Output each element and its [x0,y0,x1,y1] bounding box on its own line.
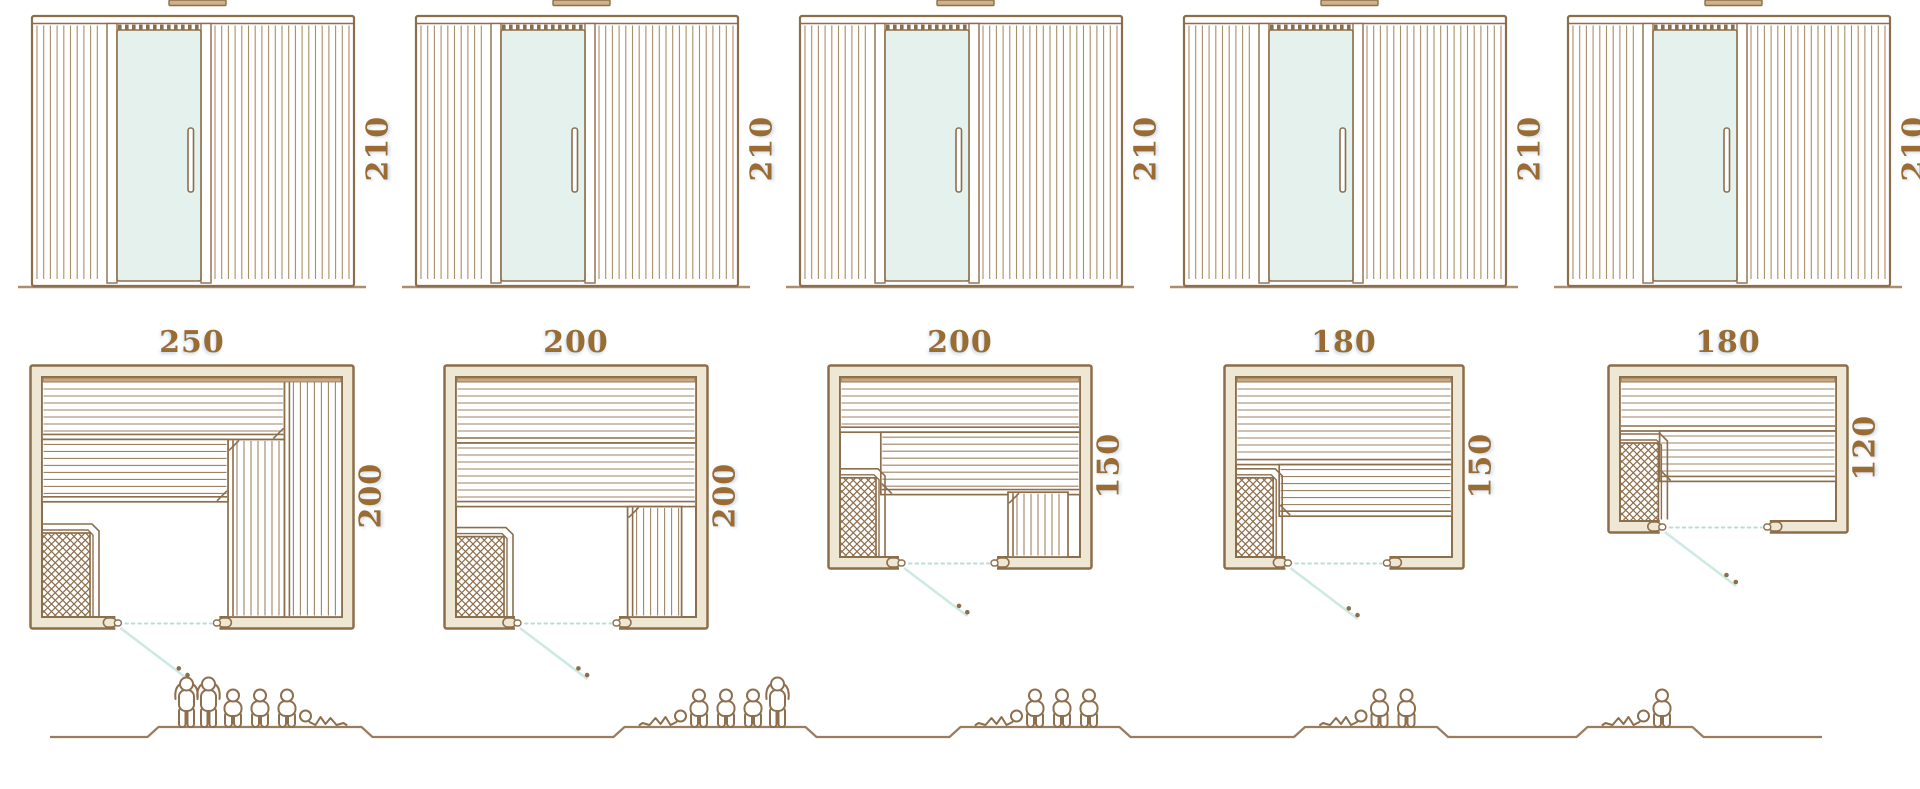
door-swing [1273,556,1401,620]
plan-depth-label-2: 200 [708,465,743,529]
sauna-plan-1: 250 200 [29,328,355,704]
bench [628,507,682,617]
bench [284,377,342,617]
plan-drawing-4 [1223,364,1465,644]
person-seated [718,690,735,728]
person-seated [1081,690,1098,728]
bench [42,439,228,501]
plan-drawing-5 [1607,364,1849,608]
plan-cell-5: 180 120 [1536,328,1920,678]
door-handle [1340,128,1346,192]
door-handle [188,128,194,192]
person-lying [976,711,1023,726]
person-lying [300,711,347,726]
person-seated [691,690,708,728]
person-seated [1371,690,1388,728]
person-seated [1054,690,1071,728]
bench [840,377,1080,432]
plan-width-label-5: 180 [1607,328,1849,364]
elevation-drawing [16,0,368,292]
sauna-plan-2: 200 200 [443,328,709,704]
person-standing [197,678,219,728]
elevation-cell-2: 210 [384,0,768,300]
plan-drawing [827,364,1093,644]
plan-cell-1: 250 200 [0,328,384,678]
elevation-drawing [1168,0,1520,292]
plan-drawing [443,364,709,704]
door-swing [1648,520,1782,587]
plan-drawing-2 [443,364,709,704]
ground-line [50,727,1822,737]
person-standing [766,678,788,728]
elevation-cell-1: 210 [0,0,384,300]
person-seated [745,690,762,728]
plan-drawing [1223,364,1465,644]
sauna-plan-4: 180 150 [1223,328,1465,644]
plan-width-label-1: 250 [29,328,355,364]
bench [1236,377,1452,465]
elevation-drawing [1552,0,1904,292]
elevation-drawing [784,0,1136,292]
sauna-dimensions-diagram: 210 210 210 210 210 250 200 200 200 [0,0,1920,789]
bench [228,439,284,617]
plan-width-label-3: 200 [827,328,1093,364]
person-lying [640,711,687,726]
person-seated [1654,690,1671,728]
person-lying [1320,711,1367,726]
bench [456,377,696,443]
elevation-cell-5: 210 [1536,0,1920,300]
bench [456,443,696,507]
plan-cell-4: 180 150 [1152,328,1536,678]
plan-cell-2: 200 200 [384,328,768,678]
person-seated [1398,690,1415,728]
sauna-elevation-5 [1552,0,1904,292]
person-seated [279,690,296,728]
plan-depth-label-5: 120 [1848,417,1883,481]
capacity-drawing [0,664,1920,789]
elevation-cell-3: 210 [768,0,1152,300]
person-seated [225,690,242,728]
door-handle [572,128,578,192]
person-seated [252,690,269,728]
elevation-cell-4: 210 [1152,0,1536,300]
sauna-elevation-1 [16,0,368,292]
sauna-plan-5: 180 120 [1607,328,1849,608]
plan-cell-3: 200 150 [768,328,1152,678]
plan-width-label-2: 200 [443,328,709,364]
door-handle [956,128,962,192]
elevation-drawing [400,0,752,292]
plan-depth-label-4: 150 [1464,435,1499,499]
bench [1279,465,1452,517]
bench [881,432,1080,494]
plan-drawing-3 [827,364,1093,644]
bench [1660,431,1836,481]
sauna-elevation-3 [784,0,1136,292]
heater [42,524,99,617]
sauna-elevation-4 [1168,0,1520,292]
person-standing [175,678,197,728]
door-handle [1724,128,1730,192]
sauna-plan-3: 200 150 [827,328,1093,644]
plan-drawing [1607,364,1849,608]
bench [1620,377,1836,431]
person-seated [1027,690,1044,728]
plan-width-label-4: 180 [1223,328,1465,364]
heater [456,528,513,617]
plan-depth-label-3: 150 [1092,435,1127,499]
person-lying [1603,711,1650,726]
elevation-height-label-5: 210 [1897,118,1920,182]
door-swing [887,556,1009,617]
capacity-row [0,664,1920,789]
bench [1008,492,1068,557]
bench [42,377,284,439]
plan-drawing [29,364,355,704]
sauna-elevation-2 [400,0,752,292]
plan-drawing-1 [29,364,355,704]
